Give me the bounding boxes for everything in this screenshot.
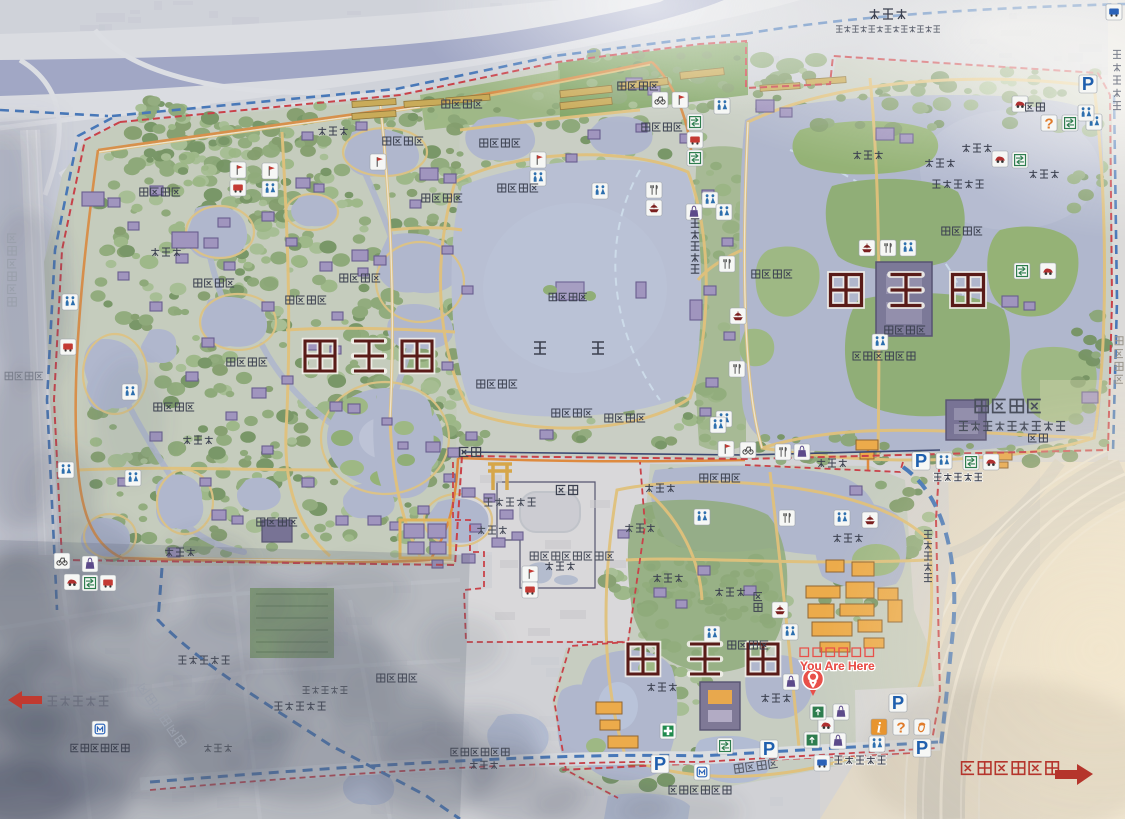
svg-text:?: ? [896, 719, 905, 736]
svg-text:You Are Here: You Are Here [800, 659, 875, 673]
svg-text:P: P [916, 737, 928, 758]
svg-text:P: P [763, 738, 775, 759]
svg-text:P: P [915, 450, 927, 471]
svg-text:P: P [1082, 73, 1094, 94]
svg-text:?: ? [1044, 115, 1053, 132]
svg-text:P: P [654, 753, 666, 774]
svg-text:P: P [892, 692, 904, 713]
